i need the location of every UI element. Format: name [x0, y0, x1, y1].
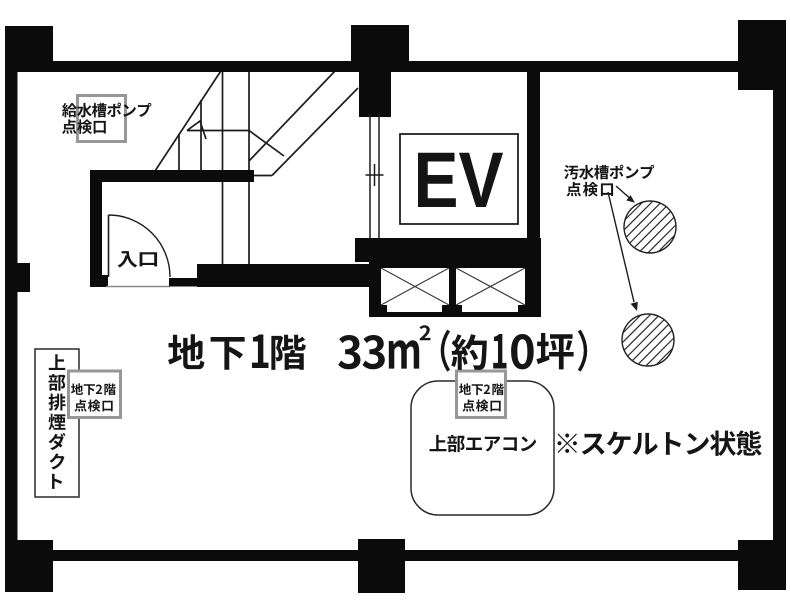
svg-text:EV: EV: [414, 135, 504, 224]
